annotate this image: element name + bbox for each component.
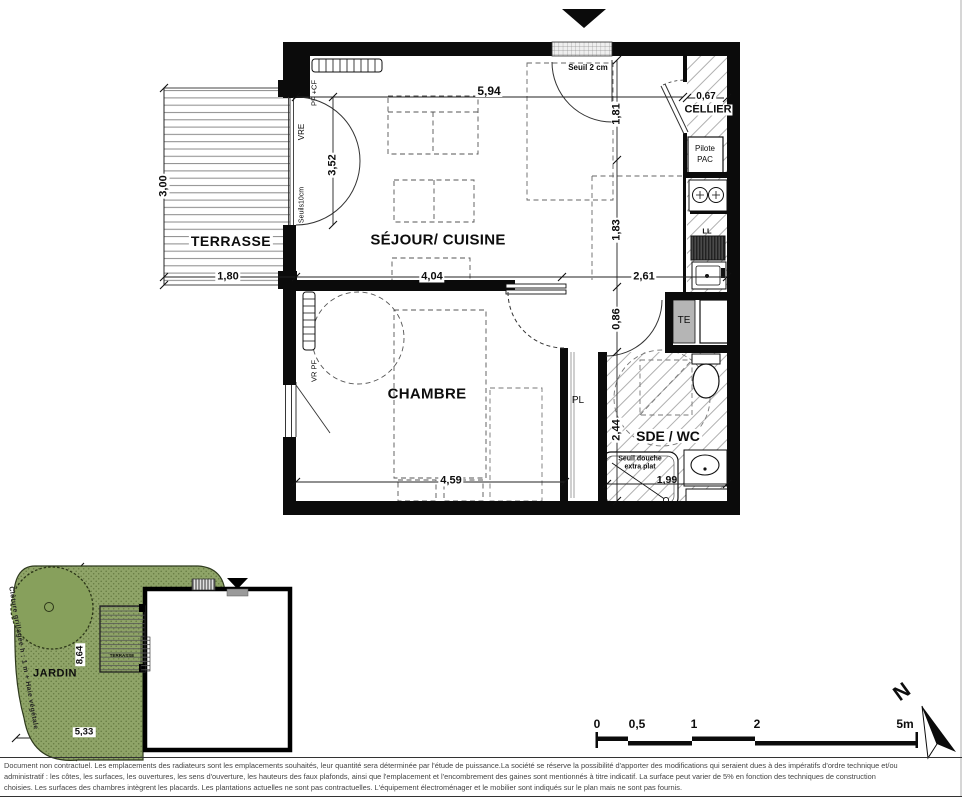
dim-terrasse-width: 1,80 [215, 272, 240, 283]
ll-label: LL [702, 227, 711, 235]
pl-label: PL [572, 396, 584, 406]
plan-drawing [0, 0, 966, 800]
seuils-label: Seuils10cm [299, 187, 306, 223]
placard-front [571, 352, 574, 498]
disclaimer-line-2: administratif : les côtes, les surfaces,… [4, 771, 958, 782]
site-terrace [100, 606, 145, 672]
vre-label: VRE [298, 124, 306, 140]
dim-cellier-width: 0,67 [695, 92, 716, 102]
doors [289, 60, 689, 356]
radiator-chambre [303, 292, 315, 350]
scale-tick-0: 0 [594, 718, 601, 730]
washbasin [684, 450, 730, 503]
room-label-cellier: CELLIER [683, 105, 732, 116]
washing-machine [691, 236, 725, 260]
scale-tick-05: 0,5 [629, 718, 646, 730]
scale-tick-2: 2 [754, 718, 761, 730]
pilote-pac-label: Pilote PAC [695, 144, 715, 166]
room-label-sde-wc: SDE / WC [634, 429, 702, 443]
pf-cf-label: PF +CF [310, 80, 318, 106]
scale-tick-5m: 5m [896, 718, 913, 730]
kitchen-sink [692, 262, 726, 289]
dim-sde-width: 1,99 [657, 475, 677, 486]
dim-kitchen-depth: 1,83 [612, 217, 623, 242]
toilet [692, 354, 720, 398]
entry-threshold-hatch [552, 42, 612, 56]
dim-garden-width: 5,33 [73, 727, 96, 737]
entry-threshold-note: Seuil 2 cm [568, 64, 608, 72]
terrace-decking [164, 88, 290, 285]
disclaimer-line-1: Document non contractuel. Les emplacemen… [4, 760, 958, 771]
dim-terrasse-height: 3,00 [159, 173, 170, 198]
dim-sde-height: 2,44 [612, 417, 623, 442]
disclaimer-box: Document non contractuel. Les emplacemen… [0, 757, 962, 797]
chambre-window [283, 382, 330, 437]
tree [11, 567, 93, 649]
dim-hall-width: 0,86 [612, 306, 623, 331]
disclaimer-line-3: choisies. Les surfaces des chambres intè… [4, 782, 958, 793]
dim-bay-height: 3,52 [328, 152, 339, 177]
room-label-sejour-cuisine: SÉJOUR/ CUISINE [370, 233, 505, 248]
room-label-terrasse: TERRASSE [189, 234, 273, 248]
north-arrow [922, 706, 956, 758]
radiator-sejour [312, 59, 382, 72]
site-entry-hatch [192, 579, 215, 590]
jardin-label: JARDIN [33, 669, 77, 680]
scale-tick-1: 1 [691, 718, 698, 730]
te-label: TE [678, 316, 691, 326]
room-label-chambre: CHAMBRE [388, 387, 467, 402]
clearance-circle-chambre [312, 292, 404, 384]
dim-sejour-width: 5,94 [475, 85, 502, 97]
dim-entry-depth: 1,81 [612, 101, 623, 126]
kitchen-counter-outline [592, 176, 683, 280]
building-footprint [145, 589, 290, 750]
floor-plan-sheet: TERRASSE SÉJOUR/ CUISINE CHAMBRE SDE / W… [0, 0, 966, 800]
dim-garden-height: 8,64 [75, 644, 85, 667]
site-terrasse-label: TERRASSE [110, 654, 135, 659]
dim-sejour-left: 4,04 [419, 272, 444, 283]
dim-sejour-right: 2,61 [631, 272, 656, 283]
site-plan [11, 566, 290, 760]
dim-chambre-width: 4,59 [438, 476, 463, 487]
chambre-door-swing [508, 292, 564, 348]
shower-threshold-note: Seuil douche extra plat [614, 456, 666, 473]
entry-clearance [527, 63, 613, 200]
entrance-marker-triangle [562, 9, 606, 28]
cooktop [689, 180, 727, 211]
pillow [398, 480, 436, 501]
wardrobe [490, 388, 542, 501]
scale-bar [596, 732, 919, 748]
vr-pf-label: VR PF [310, 360, 318, 382]
